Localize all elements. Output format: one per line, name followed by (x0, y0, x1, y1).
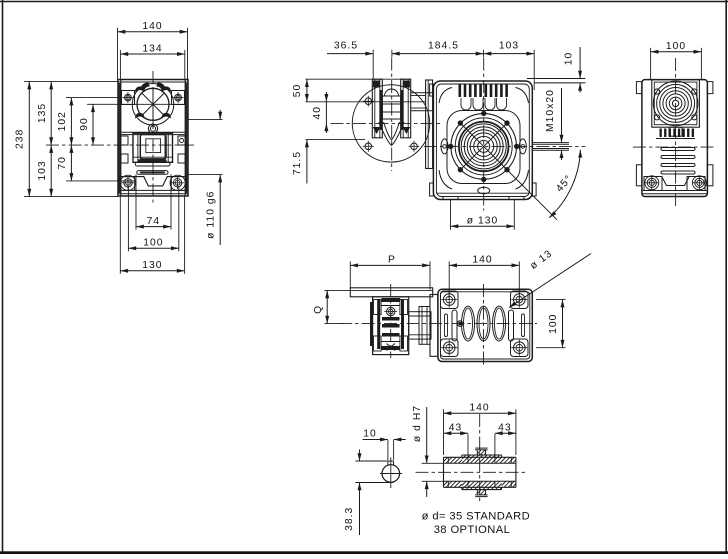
svg-text:M10x20: M10x20 (545, 89, 556, 132)
svg-text:100: 100 (548, 314, 559, 334)
svg-text:ø d= 35 STANDARD: ø d= 35 STANDARD (422, 511, 530, 523)
svg-text:43: 43 (449, 422, 463, 433)
svg-text:38 OPTIONAL: 38 OPTIONAL (434, 524, 511, 536)
svg-text:10: 10 (564, 52, 575, 66)
svg-text:71.5: 71.5 (292, 151, 303, 175)
svg-text:90: 90 (79, 117, 90, 131)
svg-text:74: 74 (147, 216, 161, 227)
svg-text:184.5: 184.5 (428, 41, 459, 52)
svg-text:103: 103 (37, 160, 48, 180)
svg-text:10: 10 (363, 429, 377, 440)
svg-text:140: 140 (472, 254, 492, 265)
svg-text:100: 100 (143, 238, 163, 249)
svg-text:ø d H7: ø d H7 (412, 405, 423, 442)
svg-text:140: 140 (469, 402, 489, 413)
svg-text:ø 110 g6: ø 110 g6 (205, 191, 216, 239)
svg-text:238: 238 (15, 129, 26, 149)
svg-text:Q: Q (313, 305, 324, 314)
svg-text:ø 130: ø 130 (467, 215, 499, 226)
svg-text:P: P (388, 254, 396, 265)
svg-text:140: 140 (142, 21, 162, 32)
svg-text:38.3: 38.3 (344, 507, 355, 531)
svg-text:43: 43 (498, 422, 512, 433)
svg-text:102: 102 (57, 111, 68, 131)
svg-text:130: 130 (142, 260, 162, 271)
svg-text:135: 135 (37, 103, 48, 123)
svg-text:50: 50 (292, 84, 303, 98)
svg-text:40: 40 (312, 106, 323, 120)
svg-text:134: 134 (142, 44, 162, 55)
svg-text:36.5: 36.5 (334, 41, 358, 52)
svg-text:70: 70 (57, 156, 68, 170)
svg-text:103: 103 (499, 41, 519, 52)
svg-text:100: 100 (666, 41, 686, 52)
